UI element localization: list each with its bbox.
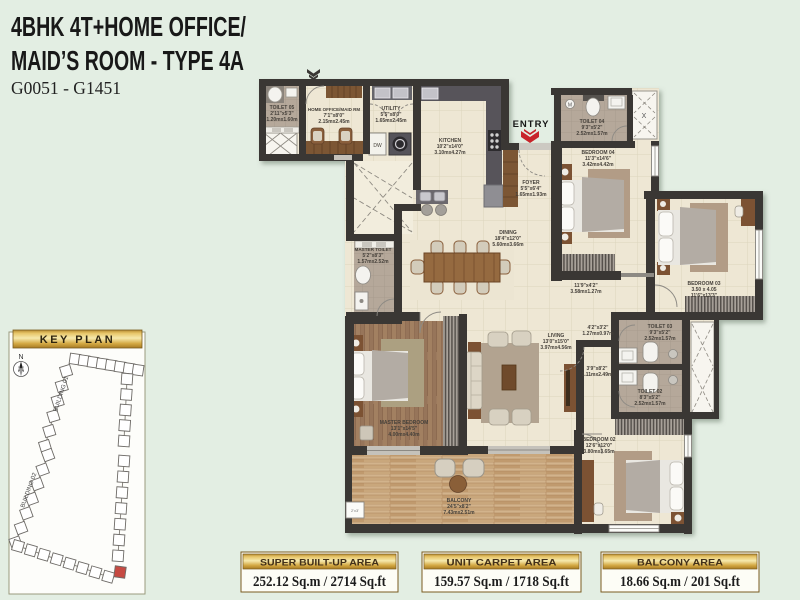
svg-text:159.57 Sq.m / 1718 Sq.ft: 159.57 Sq.m / 1718 Sq.ft bbox=[434, 574, 569, 590]
svg-text:7.43mx2.51m: 7.43mx2.51m bbox=[443, 510, 475, 516]
svg-text:4BHK 4T+HOME OFFICE/: 4BHK 4T+HOME OFFICE/ bbox=[11, 11, 246, 42]
svg-text:11'6"x13'3": 11'6"x13'3" bbox=[691, 293, 718, 299]
svg-text:1.27mx0.97m: 1.27mx0.97m bbox=[582, 331, 614, 337]
svg-text:3.58mx1.27m: 3.58mx1.27m bbox=[570, 289, 602, 295]
svg-text:2.52mx1.57m: 2.52mx1.57m bbox=[576, 131, 608, 137]
svg-text:3.97mx4.56m: 3.97mx4.56m bbox=[540, 345, 572, 351]
svg-text:MAID’S ROOM - TYPE 4A: MAID’S ROOM - TYPE 4A bbox=[11, 45, 244, 76]
svg-text:18.66 Sq.m / 201 Sq.ft: 18.66 Sq.m / 201 Sq.ft bbox=[620, 574, 740, 590]
svg-text:UNIT CARPET AREA: UNIT CARPET AREA bbox=[447, 558, 557, 569]
svg-text:BALCONY AREA: BALCONY AREA bbox=[637, 558, 723, 569]
svg-text:1.20mx1.60m: 1.20mx1.60m bbox=[266, 117, 298, 123]
svg-text:1.65mx1.93m: 1.65mx1.93m bbox=[515, 192, 547, 198]
svg-text:HOME OFFICE/MAID RM: HOME OFFICE/MAID RM bbox=[308, 107, 360, 112]
svg-text:3.42mx4.42m: 3.42mx4.42m bbox=[582, 162, 614, 168]
svg-text:3.10mx4.27m: 3.10mx4.27m bbox=[434, 150, 466, 156]
svg-text:X: X bbox=[642, 113, 647, 120]
svg-text:SUPER BUILT-UP AREA: SUPER BUILT-UP AREA bbox=[260, 558, 379, 569]
svg-text:2'x3': 2'x3' bbox=[351, 508, 359, 513]
svg-text:4.00mx4.40m: 4.00mx4.40m bbox=[388, 432, 420, 438]
svg-text:1.65mx2.45m: 1.65mx2.45m bbox=[375, 118, 407, 124]
svg-text:2.52mx1.57m: 2.52mx1.57m bbox=[634, 401, 666, 407]
svg-text:2.15mx2.45m: 2.15mx2.45m bbox=[318, 119, 350, 125]
svg-text:1.11mx2.49m: 1.11mx2.49m bbox=[582, 372, 613, 378]
svg-text:1.57mx2.52m: 1.57mx2.52m bbox=[357, 259, 389, 265]
svg-text:KEY PLAN: KEY PLAN bbox=[40, 334, 115, 346]
svg-text:2.52mx1.57m: 2.52mx1.57m bbox=[644, 336, 676, 342]
svg-text:ENTRY: ENTRY bbox=[513, 119, 550, 130]
svg-text:252.12 Sq.m / 2714 Sq.ft: 252.12 Sq.m / 2714 Sq.ft bbox=[253, 574, 386, 590]
svg-text:DW: DW bbox=[373, 143, 382, 149]
svg-text:G0051 - G1451: G0051 - G1451 bbox=[11, 78, 121, 98]
svg-text:M: M bbox=[568, 103, 572, 109]
svg-text:3.80mx3.65m: 3.80mx3.65m bbox=[583, 449, 615, 455]
svg-text:N: N bbox=[18, 354, 23, 361]
svg-text:MASTER TOILET: MASTER TOILET bbox=[355, 247, 392, 252]
svg-text:5.60mx3.66m: 5.60mx3.66m bbox=[492, 242, 524, 248]
